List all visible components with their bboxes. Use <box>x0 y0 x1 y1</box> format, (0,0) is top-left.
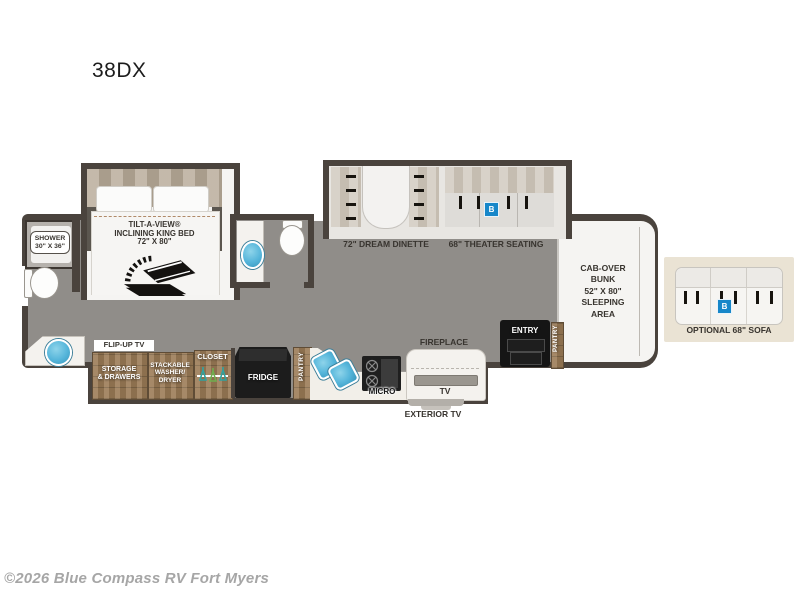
optional-sofa-label: OPTIONAL 68" SOFA <box>664 326 794 336</box>
fridge: FRIDGE <box>235 347 291 398</box>
bed-label: TILT-A-VIEW® INCLINING KING BED 72" X 80… <box>92 221 217 247</box>
pillow-right <box>153 186 209 213</box>
mid-bath-sink-icon <box>241 241 264 269</box>
bed-incline-icon <box>114 252 198 296</box>
step <box>510 352 542 365</box>
sofa-backrest <box>676 268 782 288</box>
belt-mark <box>346 217 356 220</box>
model-title: 38DX <box>92 59 147 83</box>
pantry-cabinet: PANTRY <box>293 347 312 400</box>
theater-backrest <box>445 167 554 193</box>
shower-stall: SHOWER 30" X 36" <box>25 220 77 269</box>
cabover-bunk-area: CAB-OVER BUNK 52" X 80" SLEEPING AREA <box>557 221 655 362</box>
bedroom-slideout: TILT-A-VIEW® INCLINING KING BED 72" X 80… <box>81 163 240 300</box>
belt-mark <box>477 196 480 209</box>
living-slideout: B <box>323 160 572 239</box>
front-pantry: PANTRY <box>551 322 564 369</box>
floorplan-image: 38DX CAB-OVER BUNK 52" X 80" SLEEPING AR… <box>0 0 800 600</box>
storage-drawers-cabinet: STORAGE & DRAWERS <box>92 352 148 400</box>
belt-mark <box>756 291 759 304</box>
belt-mark <box>414 217 424 220</box>
bath-sink-icon <box>45 339 72 366</box>
closet: CLOSET <box>194 350 233 400</box>
shower-label: SHOWER 30" X 36" <box>30 231 70 254</box>
belt-mark <box>459 196 462 209</box>
pillow-left <box>96 186 152 213</box>
micro-label: MICRO <box>360 388 404 397</box>
belt-mark <box>684 291 687 304</box>
belt-mark <box>346 203 356 206</box>
entry-steps: ENTRY <box>500 320 550 367</box>
belt-mark <box>414 203 424 206</box>
bed-seam <box>94 216 215 217</box>
mid-toilet-icon <box>279 225 305 256</box>
dinette-table <box>362 166 410 229</box>
cabinet-seam <box>411 368 479 369</box>
step <box>507 339 545 352</box>
belt-mark <box>696 291 699 304</box>
sofa-seam <box>710 288 711 324</box>
theater-belt-badge: B <box>484 202 499 217</box>
fireplace-label: FIREPLACE <box>404 338 484 348</box>
galley-divider-wall <box>231 348 235 398</box>
belt-mark <box>346 175 356 178</box>
tv-icon <box>414 375 478 386</box>
optional-sofa: B <box>675 267 783 325</box>
cabover-label: CAB-OVER BUNK 52" X 80" SLEEPING AREA <box>559 263 647 320</box>
flip-up-tv: FLIP-UP TV <box>94 340 154 351</box>
burner-icon <box>364 358 380 389</box>
belt-mark <box>507 196 510 209</box>
belt-mark <box>734 291 737 304</box>
mid-bath-door-gap <box>270 281 304 289</box>
toilet-icon <box>30 267 59 299</box>
watermark: ©2026 Blue Compass RV Fort Myers <box>4 570 269 587</box>
stove <box>362 356 401 391</box>
tv-cabinet: TV <box>406 349 486 401</box>
sofa-belt-badge: B <box>717 299 732 314</box>
exterior-tv-label: EXTERIOR TV <box>393 410 473 420</box>
belt-mark <box>770 291 773 304</box>
belt-mark <box>414 189 424 192</box>
griddle <box>381 359 398 388</box>
belt-mark <box>346 189 356 192</box>
exterior-tv-icon <box>408 399 464 406</box>
hanger-icon <box>198 364 228 390</box>
optional-sofa-box: B OPTIONAL 68" SOFA <box>664 257 794 342</box>
dinette-label: 72" DREAM DINETTE <box>330 240 442 250</box>
king-bed: TILT-A-VIEW® INCLINING KING BED 72" X 80… <box>91 211 220 295</box>
bath-wall <box>72 220 80 292</box>
belt-mark <box>525 196 528 209</box>
theater-label: 68" THEATER SEATING <box>440 240 552 250</box>
fridge-top <box>239 349 288 361</box>
belt-mark <box>414 175 424 178</box>
washer-dryer-cabinet: STACKABLE WASHER/ DRYER <box>148 352 194 400</box>
tv-label: TV <box>407 387 483 397</box>
sofa-seam <box>746 288 747 324</box>
